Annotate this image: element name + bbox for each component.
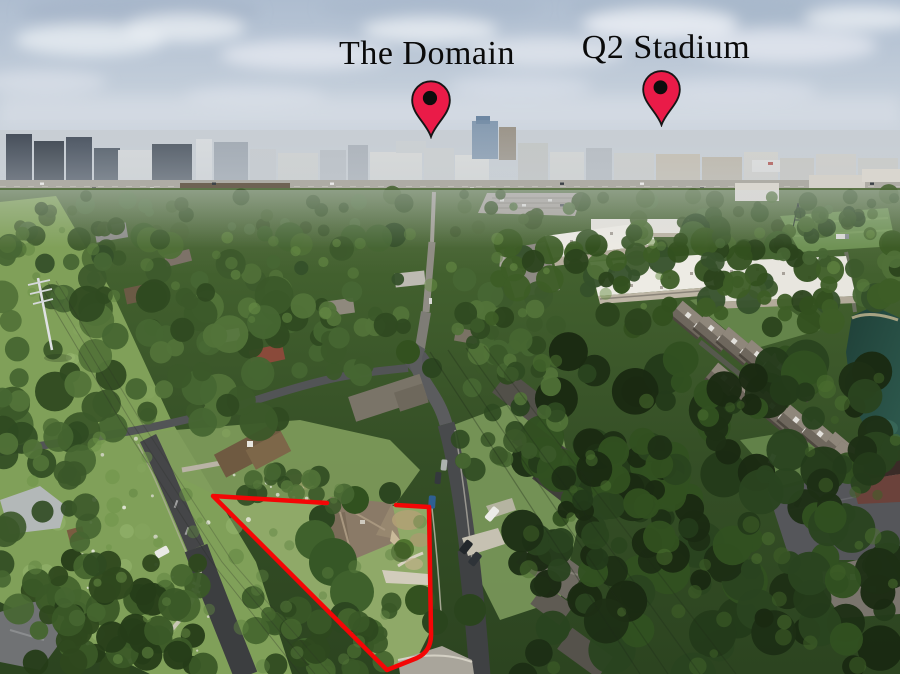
map-pin-icon xyxy=(639,68,684,127)
pin-label-q2-stadium: Q2 Stadium xyxy=(571,31,761,65)
aerial-photo: The Domain Q2 Stadium xyxy=(0,0,900,674)
pin-q2-stadium xyxy=(639,68,684,132)
pin-label-the-domain: The Domain xyxy=(332,37,522,71)
annotation-layer: The Domain Q2 Stadium xyxy=(0,0,900,674)
pin-the-domain xyxy=(408,78,454,144)
map-pin-icon xyxy=(408,78,454,139)
